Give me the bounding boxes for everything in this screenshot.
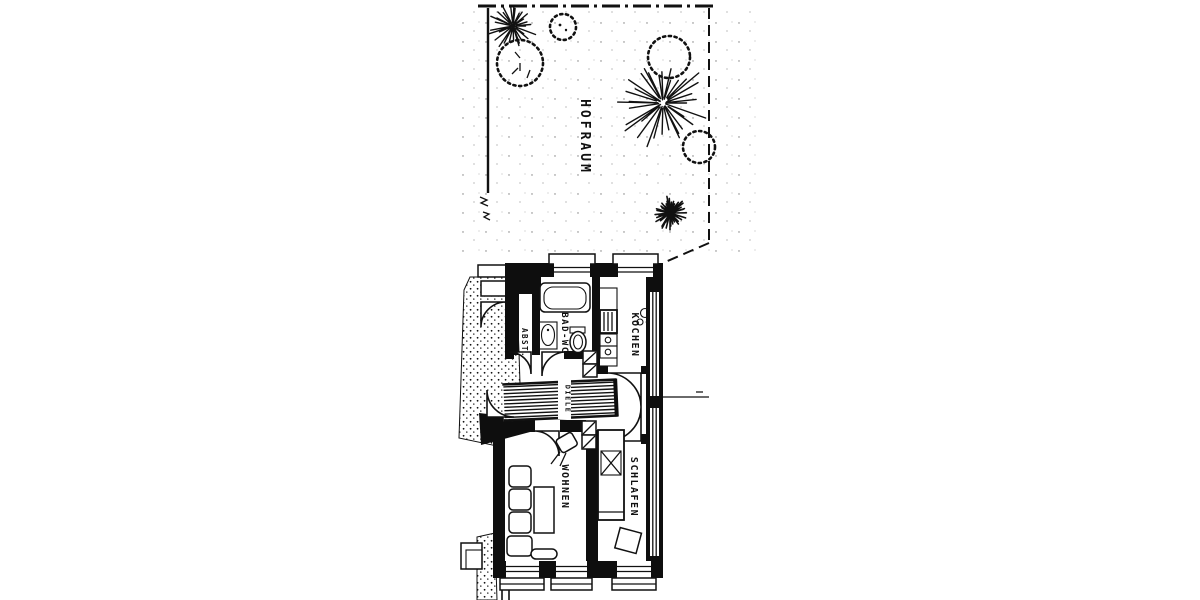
window-north-2 <box>618 263 653 277</box>
boiler-dot <box>646 321 649 324</box>
window-south-3 <box>617 561 651 578</box>
abst-label: ABST. <box>520 328 529 358</box>
floorplan-drawing: HOFRAUM <box>0 0 1200 600</box>
wall-kochen-south <box>641 366 648 374</box>
bad-wc-label: BAD-WC <box>559 312 569 354</box>
tree-trunk <box>668 211 672 215</box>
floorplan-page: HOFRAUM <box>0 0 1200 600</box>
wall-kochen-south <box>598 366 608 374</box>
annex-room <box>461 543 482 569</box>
wall-schlafen-north <box>641 434 648 444</box>
hofraum-label: HOFRAUM <box>577 99 592 175</box>
sofa <box>507 536 532 556</box>
bench <box>531 549 557 559</box>
window-sill <box>549 254 595 264</box>
wohnen-label: WOHNEN <box>559 464 570 509</box>
window-south-2 <box>556 561 587 578</box>
wall-west-lower <box>493 428 505 561</box>
nightstand <box>615 528 642 554</box>
schlafen-label: SCHLAFEN <box>628 457 639 517</box>
window-north-1 <box>554 263 590 277</box>
armchair <box>509 512 531 533</box>
wall-west-upper <box>505 263 519 355</box>
armchair <box>509 466 531 487</box>
window-east-kochen <box>650 292 659 396</box>
tree-dot <box>565 29 567 31</box>
table <box>534 487 554 533</box>
tree-trunk <box>511 24 516 29</box>
window-east-schlafen <box>650 408 659 556</box>
tree-dot <box>559 24 562 27</box>
kochen-label: KOCHEN <box>629 312 640 357</box>
window-south-1 <box>506 561 539 578</box>
armchair <box>509 489 531 510</box>
washbasin-drain <box>547 329 549 331</box>
reference-line <box>663 392 709 397</box>
window-sill <box>613 254 658 264</box>
diele-label: DIELE <box>564 385 572 414</box>
